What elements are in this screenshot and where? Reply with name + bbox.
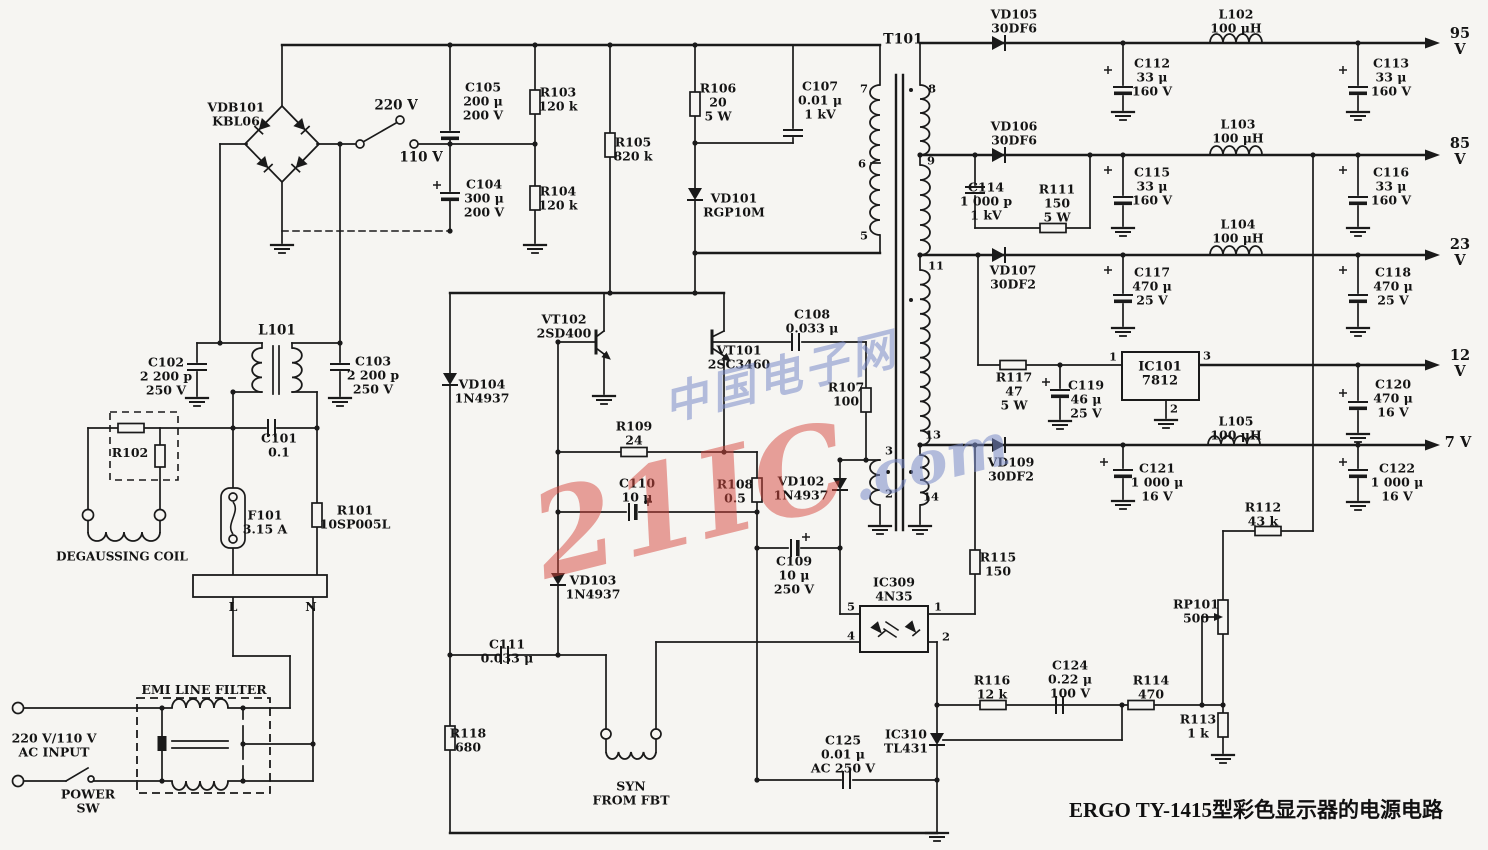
- r106-label: R106 20 5 W: [700, 81, 736, 122]
- l105-label: L105 100 μH: [1210, 414, 1261, 442]
- plus-mark: [1339, 458, 1347, 466]
- ic309-label: IC309 4N35: [873, 575, 915, 603]
- resistor: [118, 424, 144, 433]
- r105-label: R105 820 k: [613, 135, 652, 163]
- junction-dot: [159, 778, 164, 783]
- plus-mark: [1104, 166, 1112, 174]
- junction-dot: [1355, 152, 1360, 157]
- junction-dot: [1310, 152, 1315, 157]
- c104-label: C104 300 μ 200 V: [464, 177, 504, 218]
- junction-dot: [917, 252, 922, 257]
- r103-label: R103 120 k: [538, 85, 577, 113]
- wire: [363, 123, 396, 142]
- c107-label: C107 0.01 μ 1 kV: [798, 79, 842, 120]
- c122-label: C122 1 000 μ 16 V: [1371, 461, 1424, 502]
- junction-dot: [532, 42, 537, 47]
- c112-label: C112 33 μ 160 V: [1132, 56, 1172, 97]
- terminal-icon: [229, 493, 237, 501]
- pin-8-label: 8: [928, 83, 936, 96]
- c114-label: C114 1 000 p 1 kV: [960, 180, 1012, 221]
- junction-dot: [972, 442, 977, 447]
- inductor-icon: [172, 699, 228, 708]
- v110-label: 110 V: [399, 151, 442, 166]
- ic310-label: IC310 TL431: [884, 727, 928, 755]
- r111-label: R111 150 5 W: [1039, 182, 1075, 223]
- diode-vd109-icon: [992, 438, 1005, 452]
- r109-label: R109 24: [616, 419, 652, 447]
- resistor: [1128, 701, 1154, 710]
- inductor-icon: [1210, 146, 1262, 155]
- ic309-pin1-label: 1: [934, 601, 942, 614]
- terminal-icon: [88, 776, 94, 782]
- t101-label: T101: [883, 32, 923, 47]
- junction-dot: [230, 425, 235, 430]
- c105-label: C105 200 μ 200 V: [463, 80, 503, 121]
- winding-icon: [870, 460, 880, 505]
- r118-label: R118 680: [450, 726, 486, 754]
- v12-label: 12 V: [1446, 348, 1474, 380]
- junction-dot: [310, 741, 315, 746]
- pin-9-label: 9: [927, 155, 935, 168]
- r117-label: R117 47 5 W: [996, 370, 1032, 411]
- vt102-label: VT102 2SD400: [537, 312, 592, 340]
- junction-dot: [1120, 152, 1125, 157]
- resistor: [621, 448, 647, 457]
- vd109-label: VD109 30DF2: [988, 455, 1035, 483]
- terminal-icon: [396, 116, 404, 124]
- junction-dot: [555, 509, 560, 514]
- tl431-ic310-icon: [930, 733, 944, 745]
- ic101-pin3-label: 3: [1203, 350, 1211, 363]
- junction-dot: [1355, 40, 1360, 45]
- junction-dot: [692, 290, 697, 295]
- terminal-icon: [83, 510, 94, 521]
- phase-dot: [909, 298, 913, 302]
- c113-label: C113 33 μ 160 V: [1371, 56, 1411, 97]
- c124-label: C124 0.22 μ 100 V: [1048, 658, 1092, 699]
- junction-dot: [447, 228, 452, 233]
- diode-vd105-icon: [992, 36, 1005, 50]
- terminal-icon: [13, 703, 24, 714]
- cap-electrolytic: [1114, 475, 1132, 479]
- junction-dot: [555, 339, 560, 344]
- vd102-label: VD102 1N4937: [774, 474, 829, 502]
- degaussing-coil-icon: [88, 532, 160, 541]
- junction-dot: [754, 509, 759, 514]
- pin-14-label: 14: [923, 491, 939, 504]
- c116-label: C116 33 μ 160 V: [1371, 165, 1411, 206]
- resistor: [1040, 224, 1066, 233]
- diode-vd102-icon: [833, 478, 847, 490]
- resistor: [1218, 713, 1228, 737]
- junction-dot: [692, 140, 697, 145]
- v7-label: 7 V: [1445, 435, 1471, 451]
- r116-label: R116 12 k: [974, 673, 1010, 701]
- diode-vd106-icon: [992, 148, 1005, 162]
- f101-label: F101 3.15 A: [243, 508, 288, 536]
- r108-label: R108 0.5: [717, 477, 753, 505]
- cap-electrolytic: [1114, 92, 1132, 96]
- terminal-icon: [356, 140, 364, 148]
- r102-label: R102: [112, 446, 148, 460]
- plus-mark: [1104, 266, 1112, 274]
- phase-dot: [909, 470, 913, 474]
- emi-label: EMI LINE FILTER: [141, 683, 266, 697]
- junction-dot: [917, 442, 922, 447]
- junction-dot: [337, 141, 342, 146]
- resistor: [970, 550, 980, 574]
- v95-label: 95 V: [1446, 26, 1474, 58]
- junction-dot: [230, 389, 235, 394]
- junction-dot: [1355, 362, 1360, 367]
- diode-vd103-icon: [551, 573, 565, 585]
- c108-label: C108 0.033 μ: [786, 307, 839, 335]
- pin-2-label: 2: [885, 488, 893, 501]
- cap-electrolytic: [1349, 202, 1367, 206]
- plus-mark: [1339, 166, 1347, 174]
- c119-label: C119 46 μ 25 V: [1068, 378, 1104, 419]
- cap-electrolytic: [634, 504, 638, 520]
- junction-dot: [1120, 40, 1125, 45]
- vt101-label: VT101 2SC3460: [708, 343, 770, 371]
- winding-icon: [870, 85, 880, 235]
- phase-dot: [909, 88, 913, 92]
- pin-3-label: 3: [885, 445, 893, 458]
- cap-electrolytic: [441, 198, 459, 202]
- junction-dot: [863, 457, 868, 462]
- c111-label: C111 0.033 μ: [481, 637, 534, 665]
- junction-dot: [917, 152, 922, 157]
- vd104-label: VD104 1N4937: [455, 377, 510, 405]
- junction-dot: [1057, 362, 1062, 367]
- rail-arrow-icon: [1425, 150, 1440, 161]
- plus-mark: [1339, 66, 1347, 74]
- lab-n-label: N: [305, 600, 316, 614]
- junction-dot: [1087, 152, 1092, 157]
- terminal-icon: [229, 535, 237, 543]
- vdb101-label: VDB101 KBL06: [207, 100, 264, 128]
- ic309-pin2-label: 2: [942, 631, 950, 644]
- r113-label: R113 1 k: [1180, 712, 1216, 740]
- diode-vd107-icon: [992, 248, 1005, 262]
- junction-dot: [217, 340, 222, 345]
- terminal-icon: [601, 729, 611, 739]
- junction-dot: [607, 42, 612, 47]
- rail-arrow-icon: [1425, 440, 1440, 451]
- plus-mark: [802, 533, 810, 541]
- inductor-icon: [1210, 34, 1262, 43]
- inductor-icon: [172, 781, 228, 790]
- junction-dot: [972, 152, 977, 157]
- vd103-label: VD103 1N4937: [566, 573, 621, 601]
- c118-label: C118 470 μ 25 V: [1373, 265, 1413, 306]
- c117-label: C117 470 μ 25 V: [1132, 265, 1172, 306]
- winding-icon: [292, 348, 302, 392]
- c115-label: C115 33 μ 160 V: [1132, 165, 1172, 206]
- wire: [66, 768, 88, 781]
- resistor: [155, 445, 165, 467]
- l102-label: L102 100 μH: [1210, 7, 1261, 35]
- r115-label: R115 150: [980, 550, 1016, 578]
- pin-13-label: 13: [925, 429, 941, 442]
- junction-dot: [1120, 252, 1125, 257]
- v85-label: 85 V: [1446, 136, 1474, 168]
- circuit-diagram: VDB101 KBL06220 V110 VC105 200 μ 200 VR1…: [0, 0, 1488, 850]
- resistor: [752, 478, 762, 502]
- junction-dot: [1199, 702, 1204, 707]
- junction-dot: [555, 449, 560, 454]
- cap-electrolytic: [1051, 395, 1069, 399]
- plus-mark: [1339, 389, 1347, 397]
- c102-label: C102 2 200 p 250 V: [140, 355, 192, 396]
- c109-label: C109 10 μ 250 V: [774, 554, 814, 595]
- junction-dot: [555, 652, 560, 657]
- junction-dot: [692, 250, 697, 255]
- rail-arrow-icon: [1425, 250, 1440, 261]
- junction-dot: [159, 705, 164, 710]
- junction-dot: [837, 545, 842, 550]
- c101-label: C101 0.1: [261, 431, 297, 459]
- cap-electrolytic: [441, 137, 459, 141]
- resistor: [1000, 361, 1026, 370]
- winding-icon: [252, 348, 262, 392]
- junction-dot: [607, 290, 612, 295]
- junction-dot: [447, 42, 452, 47]
- junction-dot: [754, 777, 759, 782]
- ic101-pin1-label: 1: [1109, 351, 1117, 364]
- junction-dot: [447, 652, 452, 657]
- plus-mark: [433, 181, 441, 189]
- winding-icon: [920, 165, 930, 255]
- resistor: [690, 92, 700, 116]
- diode-vd101-icon: [688, 188, 702, 200]
- r112-label: R112 43 k: [1245, 500, 1281, 528]
- junction-dot: [240, 741, 245, 746]
- cap-electrolytic: [1114, 300, 1132, 304]
- junction-dot: [447, 141, 452, 146]
- junction-dot: [1119, 702, 1124, 707]
- v23-label: 23 V: [1446, 237, 1474, 269]
- junction-dot: [837, 457, 842, 462]
- cap-electrolytic: [1349, 300, 1367, 304]
- vd107-label: VD107 30DF2: [990, 263, 1037, 291]
- junction-dot: [1220, 702, 1225, 707]
- vd106-label: VD106 30DF6: [991, 119, 1038, 147]
- r101-label: R101 10SP005L: [320, 503, 391, 531]
- emi-cap-block: [158, 736, 167, 751]
- terminal-icon: [651, 729, 661, 739]
- junction-dot: [934, 702, 939, 707]
- diagram-title: ERGO TY-1415型彩色显示器的电源电路: [1069, 794, 1443, 824]
- pin-5-label: 5: [860, 230, 868, 243]
- junction-dot: [240, 705, 245, 710]
- junction-dot: [692, 42, 697, 47]
- resistor: [980, 701, 1006, 710]
- rp101-label: RP101 500: [1173, 597, 1219, 625]
- terminal-icon: [13, 776, 24, 787]
- pin-6-label: 6: [858, 158, 866, 171]
- syn-label: SYN FROM FBT: [592, 779, 669, 807]
- vd105-label: VD105 30DF6: [991, 7, 1038, 35]
- plus-mark: [1042, 378, 1050, 386]
- c121-label: C121 1 000 μ 16 V: [1131, 461, 1184, 502]
- terminal-icon: [410, 140, 418, 148]
- r104-label: R104 120 k: [538, 184, 577, 212]
- syn-coil-icon: [606, 752, 656, 759]
- c103-label: C103 2 200 p 250 V: [347, 354, 399, 395]
- junction-dot: [532, 141, 537, 146]
- ic309-4n35-box: [860, 606, 928, 652]
- junction-dot: [240, 778, 245, 783]
- junction-dot: [1355, 442, 1360, 447]
- phase-dot: [886, 470, 890, 474]
- v220-label: 220 V: [374, 99, 417, 114]
- l104-label: L104 100 μH: [1212, 217, 1263, 245]
- pin-11-label: 11: [928, 260, 944, 273]
- plus-mark: [1100, 458, 1108, 466]
- junction-dot: [337, 340, 342, 345]
- junction-dot: [1120, 442, 1125, 447]
- rail-arrow-icon: [1425, 38, 1440, 49]
- junction-dot: [1355, 252, 1360, 257]
- ic309-pin4-label: 4: [847, 630, 855, 643]
- cap-electrolytic: [1349, 92, 1367, 96]
- pin-7-label: 7: [860, 83, 868, 96]
- junction-dot: [934, 777, 939, 782]
- junction-dot: [754, 545, 759, 550]
- c120-label: C120 470 μ 16 V: [1373, 377, 1413, 418]
- junction-dot: [975, 252, 980, 257]
- vd101-label: VD101 RGP10M: [703, 191, 765, 219]
- wire: [712, 331, 724, 337]
- emi-filter-box: [137, 698, 270, 793]
- terminal-icon: [155, 510, 166, 521]
- cap-electrolytic: [1114, 202, 1132, 206]
- junction-dot: [721, 449, 726, 454]
- c110-label: C110 10 μ: [619, 476, 655, 504]
- ic101-label: IC101 7812: [1138, 361, 1182, 390]
- inductor-icon: [1210, 246, 1262, 255]
- ac-input-label: 220 V/110 V AC INPUT: [12, 731, 97, 759]
- winding-icon: [920, 270, 930, 445]
- ic101-pin2-label: 2: [1170, 403, 1178, 416]
- degaussing-label: DEGAUSSING COIL: [56, 550, 188, 563]
- rail-arrow-icon: [1425, 360, 1440, 371]
- cap-electrolytic: [1349, 475, 1367, 479]
- mains-terminal-block: [193, 575, 327, 597]
- lab-l-label: L: [229, 600, 238, 614]
- l101-label: L101: [258, 324, 296, 339]
- plus-mark: [1104, 66, 1112, 74]
- ic309-pin5-label: 5: [847, 601, 855, 614]
- plus-mark: [1339, 266, 1347, 274]
- r107-label: R107 100: [828, 380, 864, 408]
- cap-electrolytic: [1349, 407, 1367, 411]
- power-sw-label: POWER SW: [61, 787, 115, 815]
- l103-label: L103 100 μH: [1212, 117, 1263, 145]
- c125-label: C125 0.01 μ AC 250 V: [811, 733, 875, 774]
- junction-dot: [314, 425, 319, 430]
- r114-label: R114 470: [1133, 673, 1169, 701]
